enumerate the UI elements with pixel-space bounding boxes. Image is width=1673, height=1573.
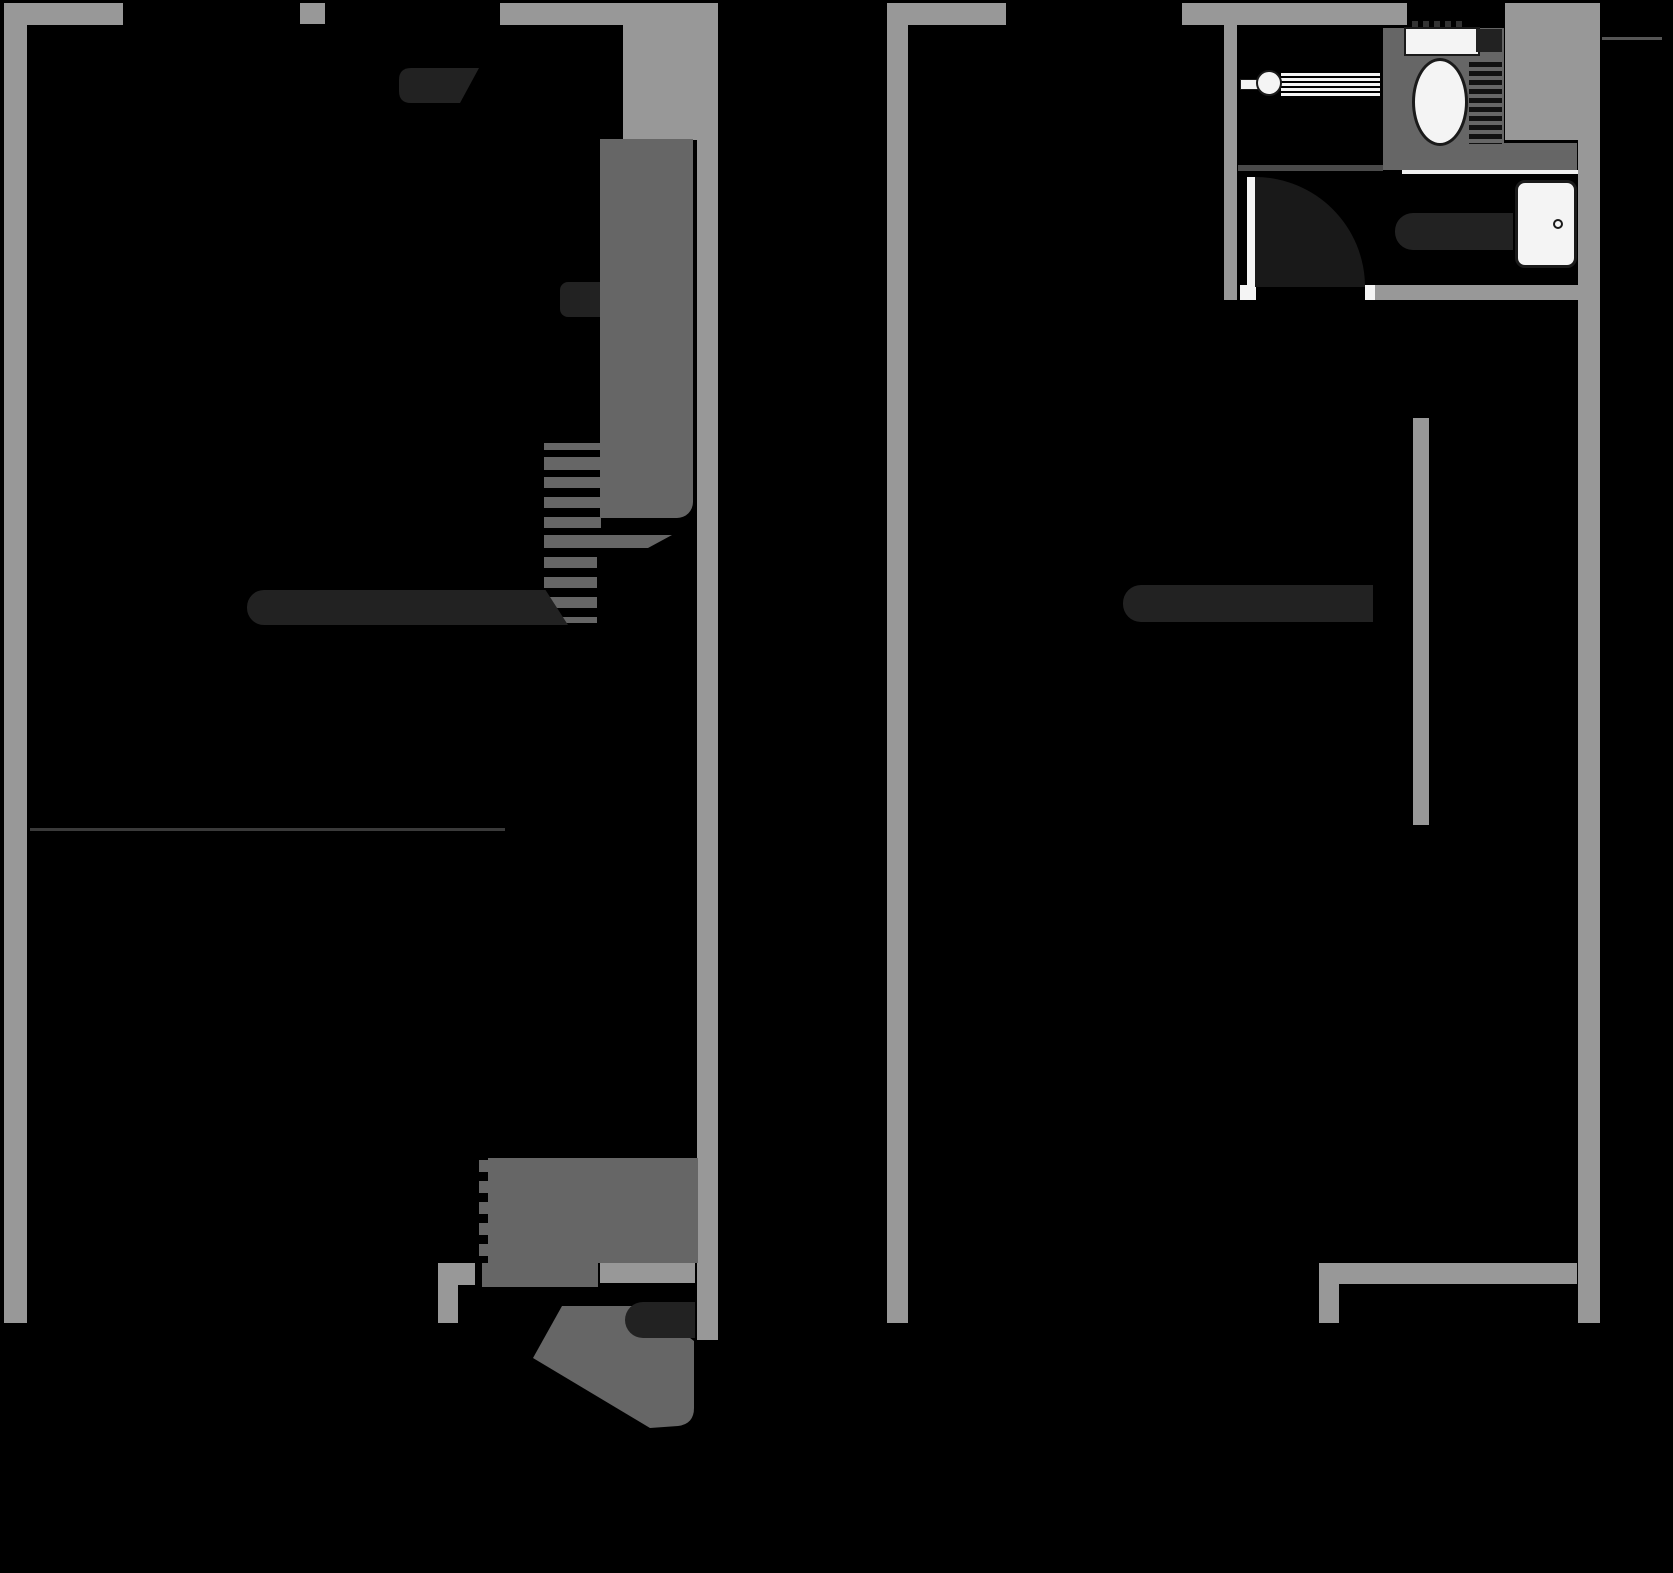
- shower-spray-line: [1281, 93, 1380, 96]
- shower-head: [1256, 70, 1282, 96]
- shower-spray-line: [1281, 83, 1380, 86]
- floor-plan-canvas: [0, 0, 1673, 1573]
- stair-winder-tread: [544, 535, 672, 548]
- toilet-bowl: [1412, 58, 1468, 146]
- cistern-side-box: [1476, 29, 1502, 52]
- toilet-cistern: [1404, 27, 1480, 56]
- towel-radiator: [1395, 213, 1513, 250]
- wash-basin: [1515, 180, 1577, 268]
- door-side-radiator: [625, 1302, 695, 1338]
- basin-drain: [1553, 219, 1563, 229]
- shower-spray-line: [1281, 78, 1380, 81]
- corner-furniture: [399, 68, 479, 103]
- bathroom-door-swing: [1255, 177, 1365, 287]
- bathroom-door-leaf: [1247, 177, 1255, 287]
- toilet-shadow-hatch: [1469, 62, 1502, 144]
- wall-radiator: [1123, 585, 1373, 622]
- shower-spray-line: [1281, 73, 1380, 76]
- shower-spray-line: [1281, 88, 1380, 91]
- stair-handrail: [247, 590, 568, 625]
